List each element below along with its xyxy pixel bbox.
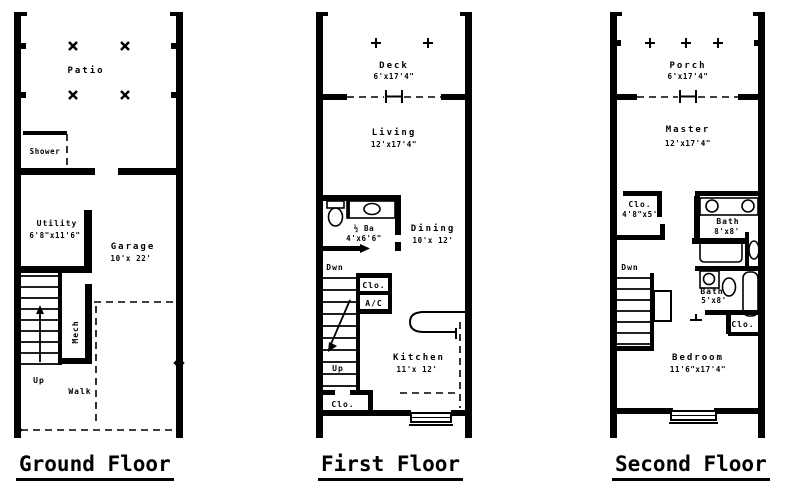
second-clo-dim: 4'8"x5' xyxy=(622,210,658,219)
ground-utility-label: Utility xyxy=(37,218,78,228)
first-entry-arrowhead xyxy=(360,244,370,253)
second-door-marker xyxy=(690,314,702,320)
second-bath2-label: Bath xyxy=(700,287,723,296)
second-bath1-dim: 8'x8' xyxy=(714,227,740,236)
ground-utility-dim: 6'8"x11'6" xyxy=(29,231,80,240)
second-dwn-label: Dwn xyxy=(621,263,638,272)
second-master-dim: 12'x17'4" xyxy=(665,139,711,148)
ground-up-label: Up xyxy=(33,376,45,385)
second-porch-door xyxy=(680,90,696,103)
ground-garage-dim: 10'x 22' xyxy=(111,254,152,263)
first-floor-plan: Deck 6'x17'4" Living 12'x17'4" ½ Ba 4'x6… xyxy=(316,10,472,442)
ground-patio-label: Patio xyxy=(67,65,104,76)
first-deck-label: Deck xyxy=(379,61,409,71)
first-window xyxy=(409,413,453,426)
first-floor-caption: First Floor xyxy=(318,452,463,481)
first-kitchen-counter xyxy=(410,312,465,339)
second-porch-label: Porch xyxy=(669,61,706,71)
first-kitchen-dim: 11'x 12' xyxy=(397,365,438,374)
second-bedroom-dim: 11'6"x17'4" xyxy=(670,365,726,374)
second-bath2-dim: 5'x8' xyxy=(701,296,727,305)
second-clo2-label: Clo. xyxy=(731,320,754,329)
ground-shower-label: Shower xyxy=(30,147,61,156)
second-bath1-label: Bath xyxy=(716,217,739,226)
second-bedroom-label: Bedroom xyxy=(672,353,724,363)
second-porch-dim: 6'x17'4" xyxy=(668,72,709,81)
ground-door-markers xyxy=(14,357,185,435)
second-master-label: Master xyxy=(666,125,711,135)
first-living-label: Living xyxy=(372,127,417,138)
second-floor-plan: Porch 6'x17'4" Master 12'x17'4" Clo. 4'8… xyxy=(610,10,765,442)
first-powder-label: ½ Ba xyxy=(354,224,374,233)
first-dwn-label: Dwn xyxy=(326,263,343,272)
first-up-label: Up xyxy=(332,364,344,373)
first-dining-dim: 10'x 12' xyxy=(413,236,454,245)
ground-floor-plan: Patio Shower Utility 6'8"x11'6" Garage 1… xyxy=(14,10,194,442)
second-clo-label: Clo. xyxy=(628,200,651,209)
second-floor-caption: Second Floor xyxy=(612,452,770,481)
ground-stairs xyxy=(21,276,58,364)
first-powder-fixtures xyxy=(327,201,395,226)
ground-garage-label: Garage xyxy=(111,242,156,252)
first-powder-dim: 4'x6'6" xyxy=(346,234,382,243)
first-deck-dim: 6'x17'4" xyxy=(374,72,415,81)
floorplan-sheet: Patio Shower Utility 6'8"x11'6" Garage 1… xyxy=(0,0,795,500)
first-kitchen-label: Kitchen xyxy=(393,352,445,363)
ground-walk-label: Walk xyxy=(68,387,91,396)
ground-mech-label: Mech xyxy=(71,320,80,343)
first-clo2-label: Clo. xyxy=(331,400,354,409)
second-stair-landing xyxy=(654,291,671,321)
ground-dashed-lines xyxy=(21,134,176,430)
first-deck-posts xyxy=(371,38,433,48)
second-porch-posts xyxy=(645,38,723,48)
first-deck-door xyxy=(386,90,402,103)
second-stairs xyxy=(617,278,650,344)
first-clo-label: Clo. xyxy=(362,281,385,290)
first-ac-label: A/C xyxy=(365,299,382,308)
first-living-dim: 12'x17'4" xyxy=(371,140,417,149)
first-dining-label: Dining xyxy=(411,223,456,234)
second-window xyxy=(669,411,718,424)
ground-floor-caption: Ground Floor xyxy=(16,452,174,481)
